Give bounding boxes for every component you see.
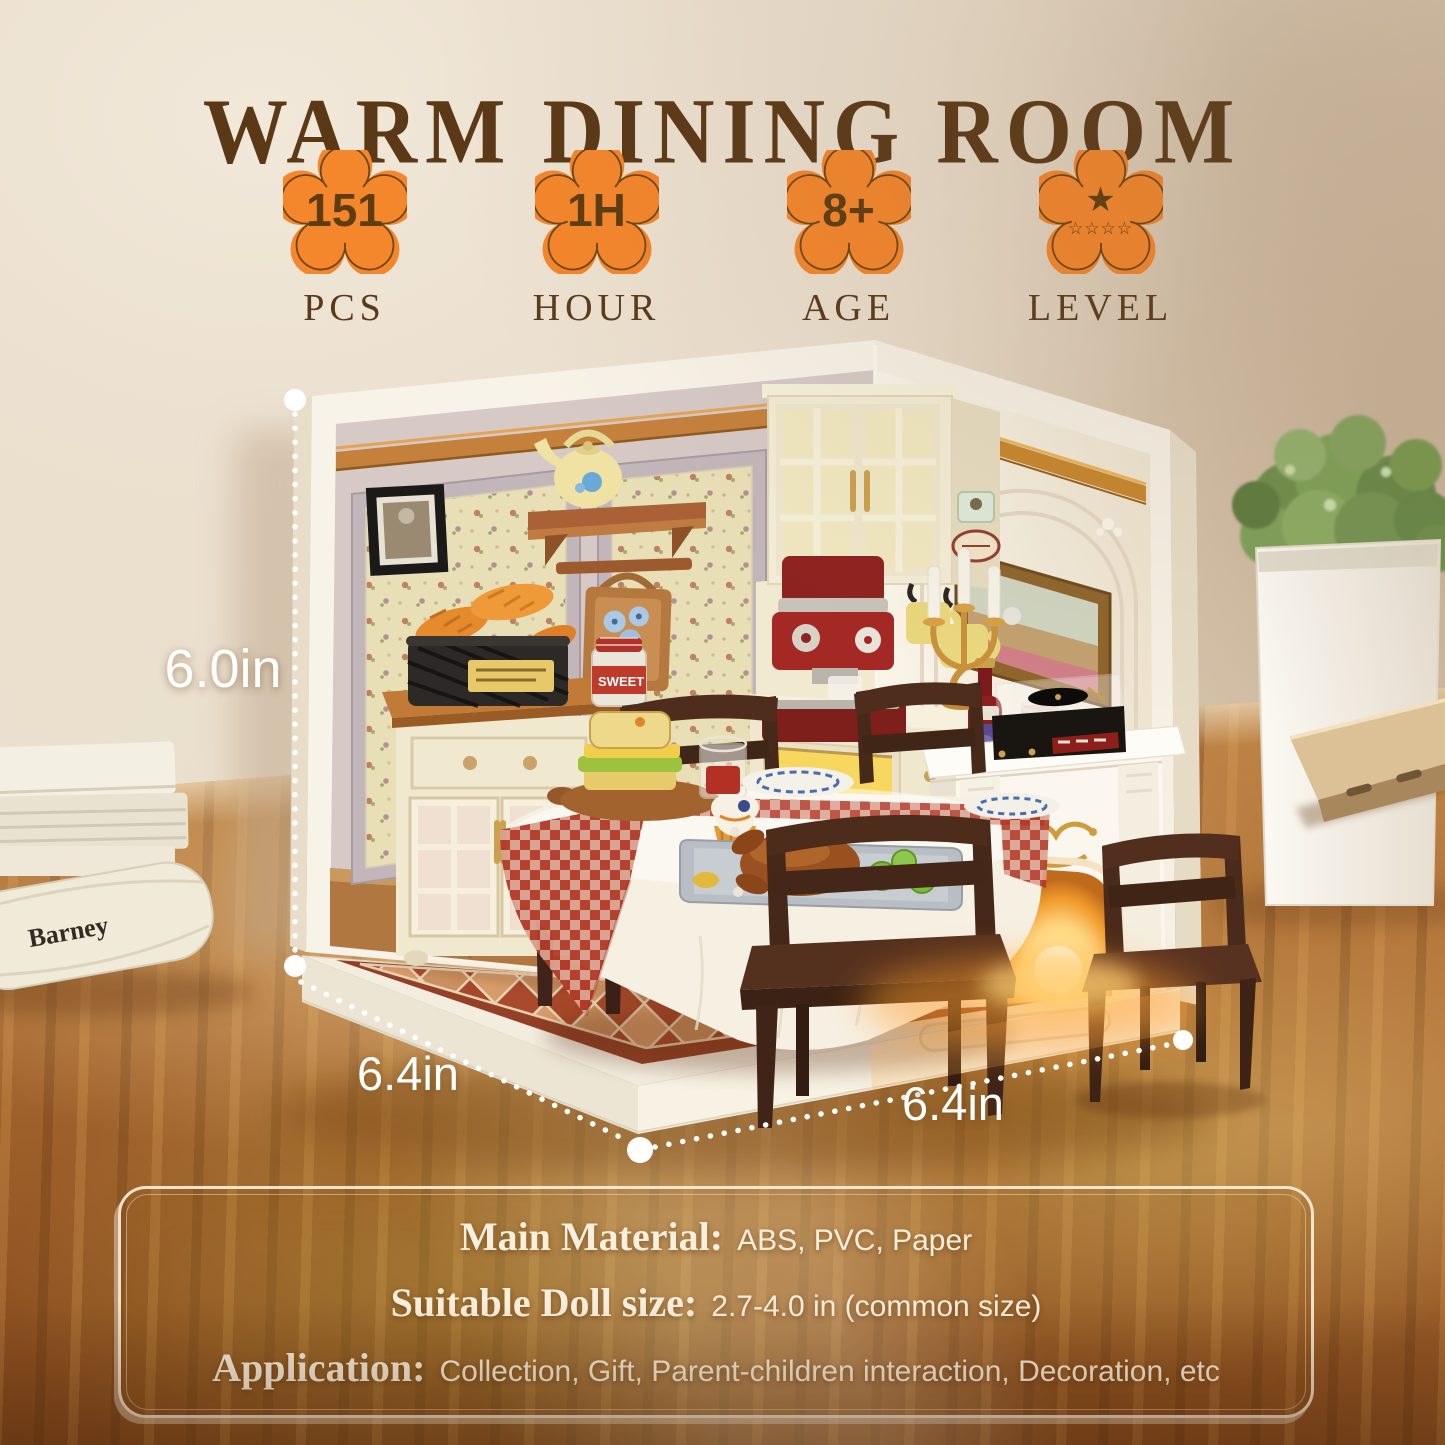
spec-material-value: ABS, PVC, Paper bbox=[737, 1224, 972, 1257]
product-infographic: Barney bbox=[0, 0, 1445, 1445]
height-dimension: 6.0in bbox=[148, 638, 298, 700]
spec-doll-size-value: 2.7-4.0 in (common size) bbox=[711, 1290, 1041, 1323]
spec-material-label: Main Material: bbox=[460, 1214, 723, 1259]
spec-application-label: Application: bbox=[212, 1345, 425, 1390]
spec-panel: Main Material:ABS, PVC, Paper Suitable D… bbox=[118, 1186, 1314, 1418]
spec-application: Application:Collection, Gift, Parent-chi… bbox=[212, 1344, 1220, 1391]
spec-application-value: Collection, Gift, Parent-children intera… bbox=[439, 1355, 1219, 1388]
spec-material: Main Material:ABS, PVC, Paper bbox=[460, 1213, 972, 1260]
spec-doll-size-label: Suitable Doll size: bbox=[391, 1280, 698, 1325]
depth-dimension: 6.4in bbox=[333, 1046, 483, 1101]
width-dimension: 6.4in bbox=[878, 1076, 1028, 1131]
spec-doll-size: Suitable Doll size:2.7-4.0 in (common si… bbox=[391, 1279, 1042, 1326]
